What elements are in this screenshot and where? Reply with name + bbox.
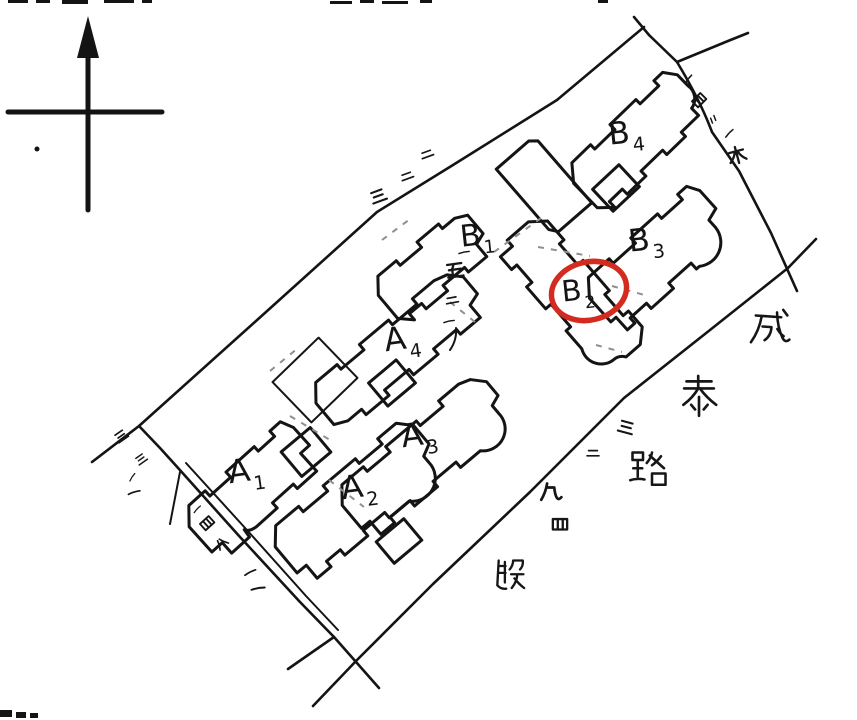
building-label-a1: A1	[225, 449, 267, 499]
road-char-lu	[630, 453, 665, 485]
road-name	[497, 308, 791, 589]
annotation-road-column	[541, 420, 634, 529]
west-corner-spur-line	[170, 472, 180, 524]
sw-boundary-line	[139, 426, 379, 688]
building-label-a2: A2	[338, 465, 380, 515]
road-char-tai	[683, 376, 716, 416]
building-outlines	[178, 66, 741, 592]
annotation-left-edge	[114, 429, 147, 494]
courtyard-square	[273, 338, 358, 423]
road-char-duan	[497, 561, 524, 589]
site-plan-canvas: A1 A2 A3 A4 B1 B2 B3 B4	[0, 0, 857, 720]
building-labels: A1 A2 A3 A4 B1 B2 B3 B4	[225, 113, 666, 514]
connector-square-a1-a2	[281, 428, 331, 477]
sw-corner-spur-line	[288, 637, 334, 669]
building-label-a3: A3	[398, 413, 440, 463]
annotation-sw-edge	[194, 506, 265, 590]
foot-square-a2	[376, 519, 422, 564]
building-label-b4: B4	[607, 113, 647, 158]
north-arrow-icon	[8, 16, 162, 210]
boundary-lines	[92, 17, 816, 706]
building-label-b1: B1	[458, 216, 496, 260]
building-outline-a1	[178, 418, 329, 563]
building-label-a4: A4	[381, 317, 423, 367]
ne-road-fork-line	[649, 33, 748, 62]
building-label-b2: B2	[560, 271, 597, 315]
scan-edge-marks	[0, 0, 608, 718]
road-char-cheng	[751, 308, 792, 345]
building-label-b3: B3	[627, 220, 667, 265]
site-plan: 成泰路段 二二三 一五二一 三二九四 一四〃一木 三三一一 一四八一	[0, 0, 857, 720]
